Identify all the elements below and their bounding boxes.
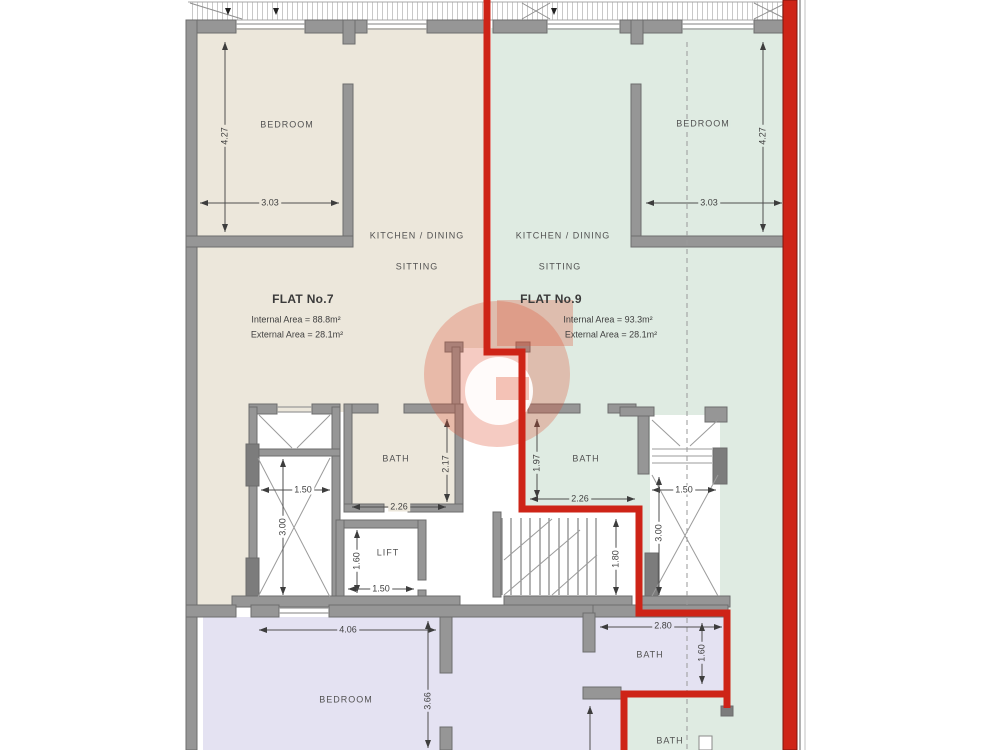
dim-shaft-right-width: 1.50	[673, 486, 695, 495]
dim-bath7-height: 2.17	[442, 453, 451, 475]
floor-plan: BEDROOM KITCHEN / DINING SITTING BATH LI…	[0, 0, 1000, 750]
dim-shaft-left-height: 3.00	[279, 516, 288, 538]
room-label-bath-flat9: BATH	[572, 455, 599, 464]
room-label-kitchen-dining-flat7: KITCHEN / DINING	[370, 232, 465, 241]
dim-bath9-height: 1.97	[533, 452, 542, 474]
dim-bedroom9-height: 4.27	[759, 125, 768, 147]
room-label-bath-lower-right: BATH	[656, 737, 683, 746]
flat9-external-area: External Area = 28.1m²	[565, 331, 657, 340]
dim-bath9-width: 2.26	[569, 495, 591, 504]
flat7-title: FLAT No.7	[272, 293, 334, 305]
room-label-bedroom-lower: BEDROOM	[319, 696, 373, 705]
room-label-kitchen-dining-flat9: KITCHEN / DINING	[516, 232, 611, 241]
dim-lift-width: 1.50	[370, 585, 392, 594]
dim-bath-lower-height: 1.60	[698, 642, 707, 664]
room-label-bath-flat7: BATH	[382, 455, 409, 464]
room-label-sitting-flat9: SITTING	[539, 263, 582, 272]
dim-shaft-right-height: 3.00	[655, 522, 664, 544]
flat9-title: FLAT No.9	[520, 293, 582, 305]
dim-stairs-height: 1.80	[612, 548, 621, 570]
dim-lift-height: 1.60	[353, 550, 362, 572]
dim-bedroom-lower-width: 4.06	[337, 626, 359, 635]
room-label-sitting-flat7: SITTING	[396, 263, 439, 272]
flat9-internal-area: Internal Area = 93.3m²	[563, 316, 652, 325]
dim-bath7-width: 2.26	[388, 503, 410, 512]
dim-bedroom7-width: 3.03	[259, 199, 281, 208]
room-label-bedroom-flat7: BEDROOM	[260, 121, 314, 130]
room-label-bath-lower: BATH	[636, 651, 663, 660]
room-label-lift: LIFT	[377, 549, 400, 558]
flat7-internal-area: Internal Area = 88.8m²	[251, 316, 340, 325]
dim-shaft-left-width: 1.50	[292, 486, 314, 495]
room-label-bedroom-flat9: BEDROOM	[676, 120, 730, 129]
flat7-external-area: External Area = 28.1m²	[251, 331, 343, 340]
dim-bedroom9-width: 3.03	[698, 199, 720, 208]
dim-bedroom-lower-height: 3.66	[424, 690, 433, 712]
dim-bath-lower-width: 2.80	[652, 622, 674, 631]
dim-bedroom7-height: 4.27	[221, 125, 230, 147]
floor-plan-linework	[0, 0, 1000, 750]
